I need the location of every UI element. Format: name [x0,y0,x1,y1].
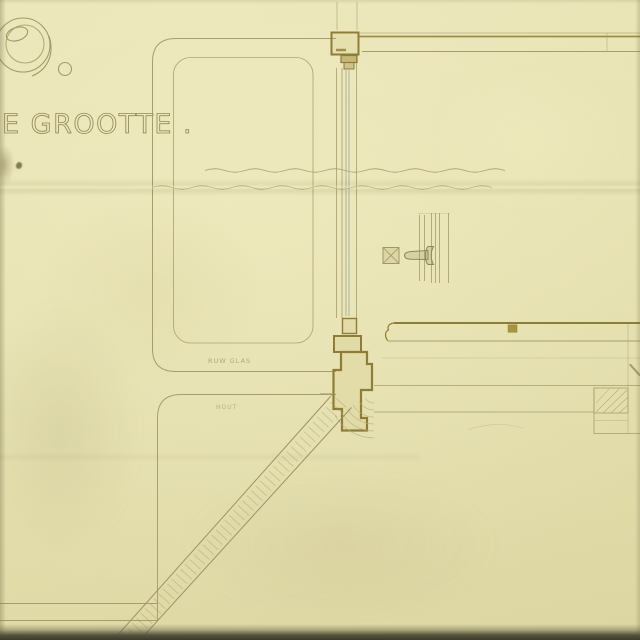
annotation-lower-material: HOUT [216,404,237,411]
lever-handle [405,247,434,265]
sheet-title: E GROOTTE . [2,109,193,140]
sheet-number-period [59,63,72,76]
frame-top-cap [332,33,359,70]
handle-detail [383,213,450,283]
escutcheon-plate [383,248,399,264]
top-rail-lines [359,33,640,52]
sill-nosing-ogee [386,323,394,341]
faint-pencil-arc [468,424,523,430]
glazing-bar [332,2,375,438]
scanned-drawing-page: E GROOTTE . [0,0,640,640]
lower-left-panel [0,395,336,621]
panel-inner-outline [174,58,314,344]
left-door-panel [153,39,337,372]
glass-pane-line [346,70,349,316]
door-edge-lines [418,213,450,283]
brace-hatch-band [128,402,341,639]
panel-outer-outline [153,39,337,372]
sheet-number-figure [0,18,72,76]
right-sill-lines [374,323,640,434]
break-lines [152,169,505,190]
frame-bottom-cap [334,319,373,431]
wood-plug [508,325,517,333]
annotation-panel-material: RUW GLAS [208,357,251,365]
drawing-linework: E GROOTTE . [0,0,640,640]
cross-hatched-block [594,388,628,421]
sill-step-profile [334,352,373,431]
